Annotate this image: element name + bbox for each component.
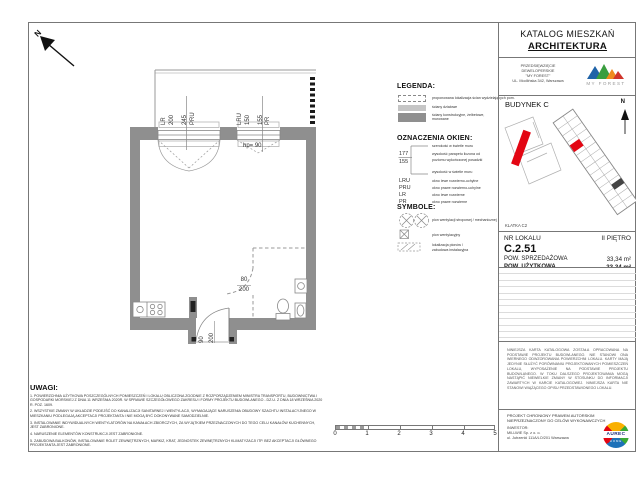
windows-key-mid-label: wysokość parapetu liczona od — [432, 152, 480, 156]
scale-label: 4 — [458, 431, 468, 437]
window-abbr-label: okno lewe rozwierne — [432, 193, 465, 197]
proposed-door-height: 200 — [236, 287, 252, 293]
scale-label: 1 — [362, 431, 372, 437]
windows-key-num-top: 177 — [399, 151, 408, 157]
window1-type-right: PRU — [190, 112, 197, 125]
panel-title-section: KATALOG MIESZKAŃ ARCHITEKTURA — [499, 22, 636, 58]
catalog-sheet: N — [0, 0, 640, 480]
site-building-c-highlight — [511, 130, 531, 167]
unit-nr-label: NR LOKALU — [504, 235, 541, 242]
legend-swatch-structural-walls — [398, 113, 426, 122]
window-abbr-label: okno prawe rozwierne — [432, 200, 467, 204]
window-abbr-label: okno prawe rozwierno-uchylne — [432, 186, 481, 190]
proposed-door-width: 80 — [236, 277, 252, 283]
aurec-logo-name: AUREC — [603, 431, 629, 438]
window2-width: 150 — [245, 115, 252, 125]
installation-shaft — [191, 301, 196, 312]
window2-type-left: LRU — [237, 113, 244, 125]
washbasin — [295, 303, 306, 318]
area-sales-label: POW. SPRZEDAŻOWA — [504, 256, 567, 263]
info-panel: KATALOG MIESZKAŃ ARCHITEKTURA PRZEDSIĘWZ… — [498, 22, 636, 452]
my-forest-logo: MY FOREST — [581, 63, 631, 86]
entry-door-height: 200 — [209, 333, 216, 343]
aurec-home-logo: AUREC HOME — [603, 422, 629, 448]
area-table-empty-rows — [499, 268, 636, 342]
note: 2. WSZYSTKIE ZMIANY W UKŁADZIE PODEJŚĆ D… — [30, 409, 324, 418]
scale-label: 2 — [394, 431, 404, 437]
legend-swatch-partition-walls — [398, 105, 426, 111]
window-abbr: PRU — [399, 185, 411, 191]
windows-key-width-label: szerokość w świetle muru — [432, 144, 473, 148]
site-building-slab — [553, 109, 636, 215]
area-table-section: BALKON 8,48 m² — [499, 268, 636, 342]
note: 5. ZABUDOWA BALKONÓW, INSTALOWANIE ROLET… — [30, 439, 324, 448]
window-abbr: LR — [399, 192, 406, 198]
notes-block: 1. POWIERZCHNIA UŻYTKOWA POSZCZEGÓLNYCH … — [30, 394, 324, 450]
symbol-label: pion wentylacyjny — [432, 233, 460, 237]
window-abbr-label: okno lewe rozwierno-uchylne — [432, 179, 478, 183]
my-forest-logo-icon — [581, 63, 631, 80]
staircase-label: KLATKA C2 — [505, 223, 527, 228]
scale-label: 0 — [330, 431, 340, 437]
symbols-title: SYMBOLE: — [397, 204, 436, 211]
unit-floor: II PIĘTRO — [601, 235, 631, 242]
symbol-vent-riser-icon — [400, 230, 409, 239]
catalog-title: KATALOG MIESZKAŃ — [499, 29, 636, 39]
building-section: BUDYNEK C N — [499, 96, 636, 232]
area-sales-value: 33,34 m² — [607, 256, 631, 263]
window1-width: 200 — [169, 115, 176, 125]
symbol-label: zabudowa instalacyjna — [432, 248, 468, 252]
windows-key-mid-label: poziomu wykończonej posadzki — [432, 158, 482, 162]
window-abbr: LRU — [399, 178, 410, 184]
scale-bar-minor — [336, 426, 368, 429]
note: 3. INSTALOWANIE INDYWIDUALNYCH WENTYLATO… — [30, 421, 324, 430]
disclaimer-text: NINIEJSZA KARTA KATALOGOWA ZOSTAŁA OPRAC… — [499, 342, 636, 396]
washing-machine — [295, 279, 307, 293]
windows-key-title: OZNACZENIA OKIEN: — [397, 135, 472, 142]
site-neighbor-buildings — [505, 117, 561, 184]
brand-name: MY FOREST — [581, 81, 631, 86]
footer-section: PROJEKT CHRONIONY PRAWEM AUTORSKIM NIEPR… — [499, 410, 636, 452]
symbol-label: pion wentylacji stropowej / mechanicznej — [432, 218, 497, 222]
developer-line: UL. Modlińska 342, Warszawa — [503, 79, 573, 84]
catalog-subtitle: ARCHITEKTURA — [499, 41, 636, 52]
note: 1. POWIERZCHNIA UŻYTKOWA POSZCZEGÓLNYCH … — [30, 394, 324, 407]
unit-number: C.2.51 — [499, 242, 636, 255]
disclaimer-section: NINIEJSZA KARTA KATALOGOWA ZOSTAŁA OPRAC… — [499, 342, 636, 410]
developer-info: PRZEDSIĘWZIĘCIE DEWELOPERSKIE "MY FOREST… — [503, 64, 573, 84]
symbol-riser-enclosure-icon — [398, 243, 420, 251]
windows-key-num-bottom: 155 — [399, 159, 408, 165]
scale-label: 3 — [426, 431, 436, 437]
unit-section: NR LOKALU II PIĘTRO C.2.51 POW. SPRZEDAŻ… — [499, 232, 636, 268]
aurec-logo-sub: HOME — [603, 439, 629, 443]
window1-height: 245 — [182, 115, 189, 125]
parapet-height-label: hp= 90 — [243, 143, 262, 149]
toilet — [276, 299, 290, 320]
symbol-vent-ceiling-icon — [400, 214, 429, 228]
window-balcony-door — [158, 122, 220, 147]
notes-title: UWAGI: — [30, 383, 58, 392]
legend-item-label: murowane — [432, 117, 449, 121]
legend-swatch-proposed-walls — [398, 95, 426, 102]
window2-type-right: PR — [265, 117, 272, 125]
kitchenette — [133, 302, 165, 317]
balcony-outline — [155, 70, 316, 127]
legend-title: LEGENDA: — [397, 83, 435, 90]
note: 4. NARUSZENIE ELEMENTÓW KONSTRUKCJI JEST… — [30, 432, 324, 436]
scale-bar — [335, 425, 495, 430]
legend-item-label: ściany działowe — [432, 105, 457, 109]
window2-height: 155 — [258, 115, 265, 125]
window1-type-left: LR — [161, 117, 168, 125]
site-plan — [499, 104, 636, 222]
developer-section: PRZEDSIĘWZIĘCIE DEWELOPERSKIE "MY FOREST… — [499, 58, 636, 96]
windows-key-height-label: wysokość w świetle muru — [432, 170, 472, 174]
entry-door-width: 90 — [199, 336, 206, 343]
proposed-partition — [226, 248, 306, 318]
